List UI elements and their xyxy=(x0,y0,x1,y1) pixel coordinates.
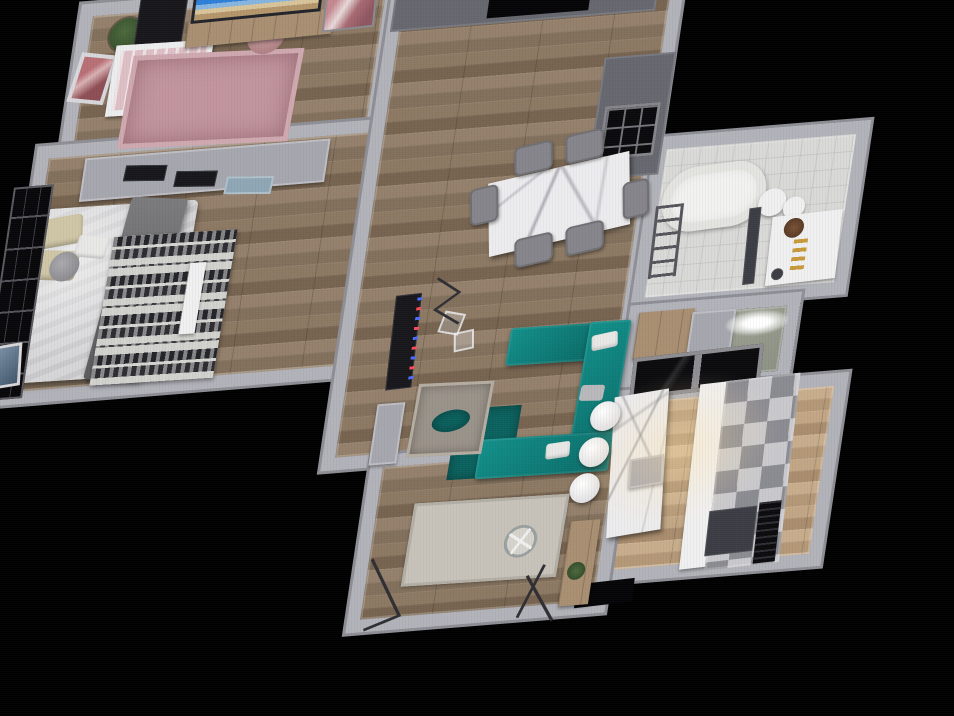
wardrobe-drawer-2 xyxy=(173,171,218,187)
sofa-arm-top xyxy=(505,323,595,366)
kitchen-light-glow xyxy=(556,356,801,542)
bedroom-picture xyxy=(0,342,22,390)
wardrobe-drawer-1 xyxy=(123,165,168,181)
balcony-rug xyxy=(401,494,570,587)
wardrobe-drawer-3 xyxy=(223,176,274,194)
dining-chair-6 xyxy=(622,177,649,220)
dining-chair-5 xyxy=(470,184,499,227)
nursery-rug xyxy=(117,48,305,149)
render-viewport xyxy=(0,0,954,716)
aztec-rug xyxy=(89,229,237,385)
